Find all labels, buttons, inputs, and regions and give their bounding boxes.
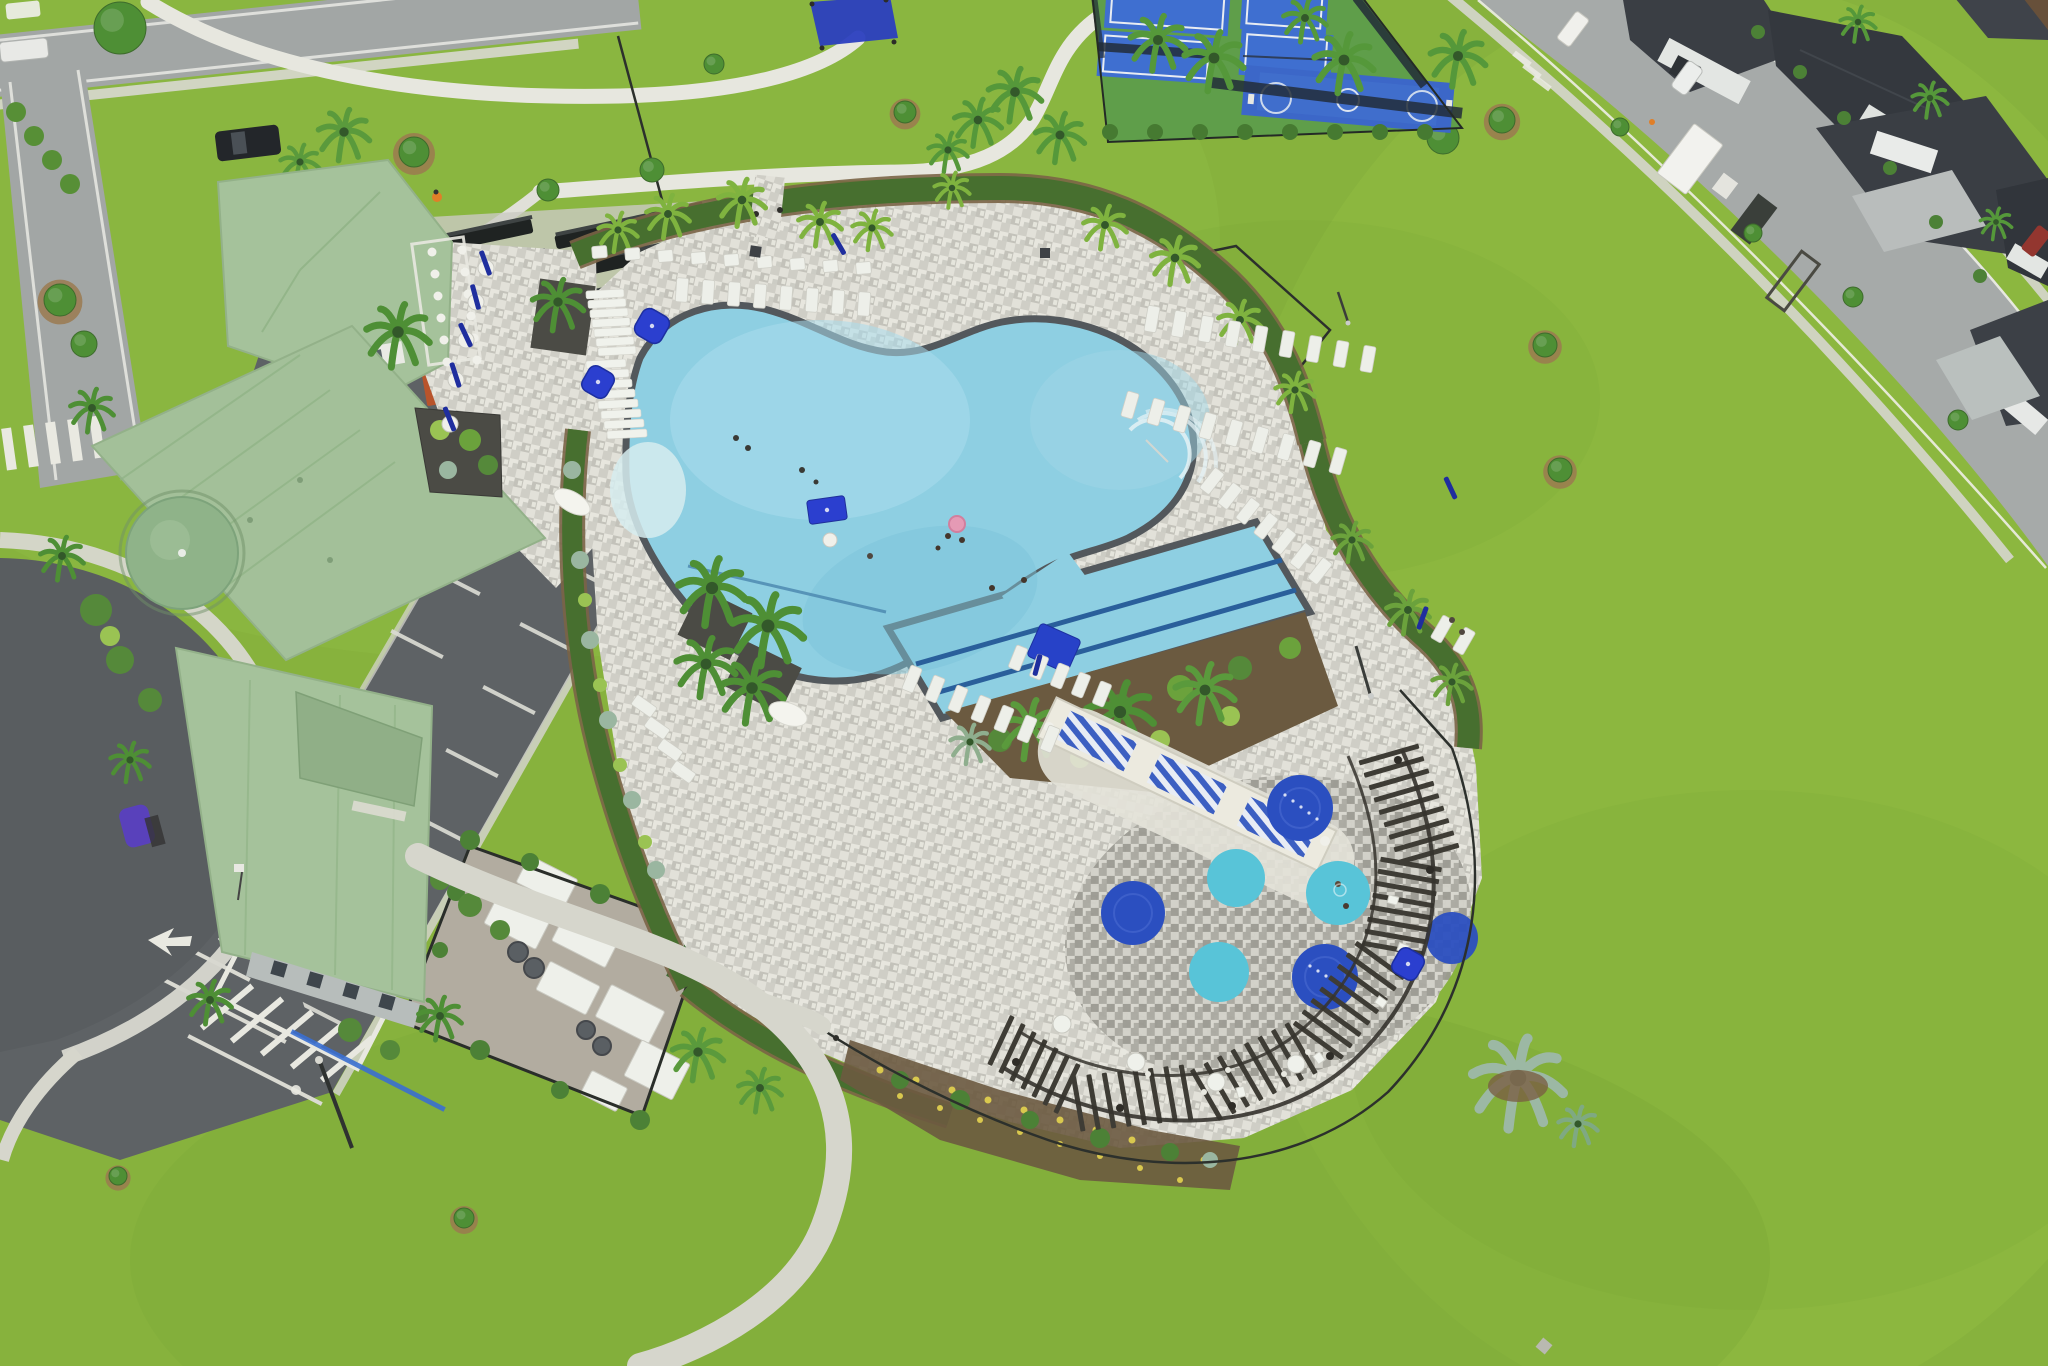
tree <box>38 280 83 325</box>
deck-chairs <box>691 251 707 264</box>
roof-vent <box>297 477 303 483</box>
swimmer <box>936 546 941 551</box>
yellow-flowers <box>1129 1137 1136 1144</box>
person-on-deck <box>1449 617 1455 623</box>
patio-table <box>1053 1015 1071 1033</box>
splash-circle-dark <box>1101 881 1165 945</box>
aerial-community-photo <box>0 0 2048 1366</box>
tree <box>890 99 921 130</box>
shrub <box>338 1018 362 1042</box>
tree <box>450 1206 478 1234</box>
shade-post <box>810 2 815 7</box>
tank-cylinder <box>524 958 544 978</box>
silver-shrub <box>439 461 457 479</box>
patio-table <box>1287 1055 1305 1073</box>
yellow-flowers <box>1137 1165 1143 1171</box>
lime-shrub <box>638 835 652 849</box>
lap-swimmer <box>1021 577 1027 583</box>
stacked-loungers <box>601 409 641 419</box>
loungers <box>727 282 741 307</box>
shrub <box>1279 637 1301 659</box>
worker-head <box>434 190 439 195</box>
deck-chairs <box>658 249 674 262</box>
stacked-loungers <box>594 327 632 337</box>
stacked-loungers <box>588 299 626 309</box>
water-jets <box>1315 817 1318 820</box>
stacked-loungers <box>590 308 628 318</box>
lime-shrub <box>613 758 627 772</box>
deck-chairs <box>592 245 608 258</box>
silver-shrub <box>647 861 665 879</box>
water-jets <box>1291 799 1294 802</box>
silver-shrub <box>563 461 581 479</box>
pergola-post <box>1012 1058 1020 1066</box>
median-shrubs <box>60 174 80 194</box>
street-tree <box>1611 118 1629 136</box>
deck-table <box>823 533 837 547</box>
lap-swimmer <box>989 585 995 591</box>
colonnade-columns <box>434 292 443 301</box>
hedge <box>521 853 539 871</box>
person-on-deck <box>867 553 873 559</box>
colonnade-columns <box>467 312 476 321</box>
swimmer <box>814 480 819 485</box>
silver-shrub <box>623 791 641 809</box>
pergola-post <box>1116 1104 1124 1112</box>
shallow-water <box>670 320 970 520</box>
swimmer <box>733 435 739 441</box>
deck-chairs <box>823 259 839 272</box>
yellow-flowers <box>985 1097 992 1104</box>
court-hedge <box>1237 124 1253 140</box>
yellow-flowers <box>977 1117 983 1123</box>
water-jets <box>1307 811 1310 814</box>
court-hedge <box>1372 124 1388 140</box>
yellow-flowers <box>877 1067 884 1074</box>
tank-cylinder <box>593 1037 611 1055</box>
colonnade-columns <box>431 270 440 279</box>
tank-cylinder <box>577 1021 595 1039</box>
patio-chair <box>1121 1049 1127 1055</box>
median-shrubs <box>24 126 44 146</box>
handicap-symbol <box>291 1085 301 1095</box>
shrub <box>1021 1111 1039 1129</box>
silver-shrub <box>1202 1152 1218 1168</box>
court-hedge <box>1192 124 1208 140</box>
cabana-column <box>1320 836 1330 846</box>
swimmer <box>959 537 965 543</box>
shrub <box>138 688 162 712</box>
patio-chair <box>1225 1067 1231 1073</box>
court-hedge <box>1102 124 1118 140</box>
deck-chairs <box>625 247 641 260</box>
stacked-loungers <box>598 346 636 356</box>
trash-bin <box>749 245 761 257</box>
splash-circle-light <box>1189 942 1249 1002</box>
court-hedge <box>1282 124 1298 140</box>
loungers <box>779 286 793 311</box>
lime-shrub <box>578 593 592 607</box>
shrub <box>1090 1128 1110 1148</box>
traffic-cone <box>1649 119 1655 125</box>
loungers <box>857 292 871 317</box>
tree <box>393 133 435 175</box>
trash-bin <box>1040 248 1050 258</box>
tree <box>1528 330 1562 364</box>
patio-chair <box>1201 1089 1207 1095</box>
splash-circle-dark <box>1426 912 1478 964</box>
patio-chair <box>1145 1071 1151 1077</box>
beach-entry <box>610 442 686 538</box>
colonnade-columns <box>437 314 446 323</box>
shrub <box>80 594 112 626</box>
patio-table <box>1207 1073 1225 1091</box>
tree <box>1543 455 1577 489</box>
hedge <box>551 1081 569 1099</box>
yellow-flowers <box>897 1093 903 1099</box>
yellow-flowers <box>1177 1177 1183 1183</box>
stacked-loungers <box>596 337 634 347</box>
aerial-photo <box>0 0 2048 1366</box>
tree <box>105 1165 130 1190</box>
pergola-post <box>1426 866 1434 874</box>
stacked-loungers <box>604 419 644 429</box>
palm-mulch <box>1488 1070 1548 1102</box>
person-on-deck <box>1459 629 1465 635</box>
stacked-loungers <box>586 289 624 299</box>
parking-sign <box>234 864 244 872</box>
loungers <box>753 284 767 309</box>
gate-post <box>777 207 783 213</box>
water-jets <box>1299 805 1302 808</box>
court-hedge <box>1327 124 1343 140</box>
tank-cylinder <box>508 942 528 962</box>
colonnade-columns <box>458 246 467 255</box>
median-shrubs <box>42 150 62 170</box>
roof-vent <box>327 557 333 563</box>
hedge <box>630 1110 650 1130</box>
hedge <box>590 884 610 904</box>
splash-circle-light <box>1207 849 1265 907</box>
water-jets <box>1283 793 1286 796</box>
planter <box>415 408 502 497</box>
lime-shrub <box>100 626 120 646</box>
loungers <box>831 290 845 315</box>
shrub <box>459 429 481 451</box>
lawn-light-base <box>1346 321 1351 326</box>
hedge <box>1751 25 1765 39</box>
tree <box>94 2 146 54</box>
colonnade-columns <box>428 248 437 257</box>
shrub <box>106 646 134 674</box>
median-shrubs <box>6 102 26 122</box>
silver-shrub <box>581 631 599 649</box>
stacked-loungers <box>592 318 630 328</box>
stacked-loungers <box>598 399 638 409</box>
loungers <box>805 288 819 313</box>
shrub <box>478 455 498 475</box>
patio-chair <box>1281 1071 1287 1077</box>
light-pole-base <box>315 1056 323 1064</box>
shrub <box>380 1040 400 1060</box>
deck-chairs <box>856 261 872 274</box>
child-playing <box>1343 903 1349 909</box>
light-pole-base <box>1368 693 1374 699</box>
hedge <box>470 1040 490 1060</box>
pergola-post <box>1394 756 1402 764</box>
water-jets <box>1324 974 1327 977</box>
pergola-post <box>1228 1102 1236 1110</box>
yellow-flowers <box>1057 1117 1064 1124</box>
stacked-loungers <box>607 429 647 439</box>
patio-chair <box>1305 1049 1311 1055</box>
patio-table <box>1127 1053 1145 1071</box>
gate-post <box>833 1035 839 1041</box>
water-jets <box>1308 964 1311 967</box>
silver-shrub <box>599 711 617 729</box>
water-jets <box>1316 969 1319 972</box>
hedge <box>1973 269 1987 283</box>
street-tree <box>1948 410 1968 430</box>
loungers <box>701 280 715 305</box>
car-windshield <box>231 131 248 155</box>
deck-chairs <box>790 257 806 270</box>
colonnade-columns <box>473 356 482 365</box>
pink-float <box>949 516 965 532</box>
tree <box>704 54 724 74</box>
basketball-hoop <box>1248 94 1255 104</box>
street-tree <box>1843 287 1863 307</box>
deck-chairs <box>724 253 740 266</box>
tree <box>640 158 664 182</box>
pergola-post <box>1326 1052 1334 1060</box>
swimmer <box>945 533 951 539</box>
tree <box>1484 104 1520 140</box>
shrub <box>1161 1143 1179 1161</box>
court-hedge <box>1417 124 1433 140</box>
hedge <box>1837 111 1851 125</box>
shade-post <box>892 40 897 45</box>
hedge <box>1929 215 1943 229</box>
hedge <box>460 830 480 850</box>
colonnade-columns <box>440 336 449 345</box>
hedge <box>1793 65 1807 79</box>
splash-circle-light <box>1306 861 1370 925</box>
yellow-flowers <box>937 1105 943 1111</box>
colonnade-columns <box>461 268 470 277</box>
roof-vent <box>247 517 253 523</box>
dome-finial <box>178 549 186 557</box>
street-tree <box>1744 224 1762 242</box>
swimmer <box>799 467 805 473</box>
silver-shrub <box>571 551 589 569</box>
umbrella-pole <box>825 508 829 512</box>
lime-shrub <box>593 678 607 692</box>
loungers <box>675 278 689 303</box>
shade-post <box>820 46 825 51</box>
tree <box>71 331 97 357</box>
hedge <box>432 942 448 958</box>
tree <box>537 179 559 201</box>
court-hedge <box>1147 124 1163 140</box>
hedge <box>1883 161 1897 175</box>
shade-sail <box>810 0 898 46</box>
shrub <box>490 920 510 940</box>
swimmer <box>745 445 751 451</box>
